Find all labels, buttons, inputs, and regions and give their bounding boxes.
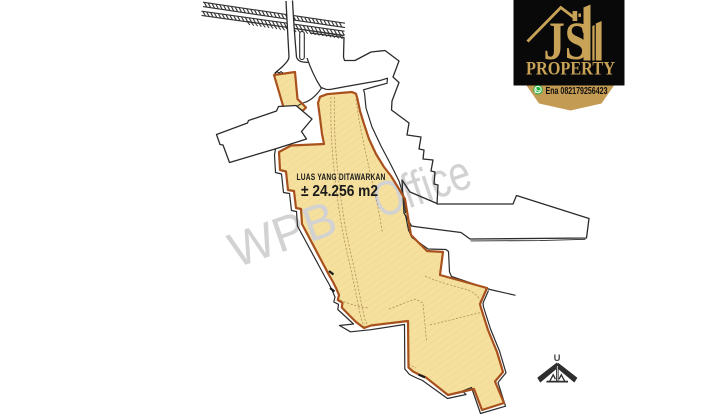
svg-text:PROPERTY: PROPERTY — [526, 60, 616, 80]
svg-text:LUAS YANG DITAWARKAN: LUAS YANG DITAWARKAN — [297, 172, 386, 182]
svg-text:Ena 082179256423: Ena 082179256423 — [546, 86, 608, 97]
svg-text:± 24.256 m2: ± 24.256 m2 — [301, 183, 378, 200]
svg-text:U: U — [554, 353, 561, 364]
